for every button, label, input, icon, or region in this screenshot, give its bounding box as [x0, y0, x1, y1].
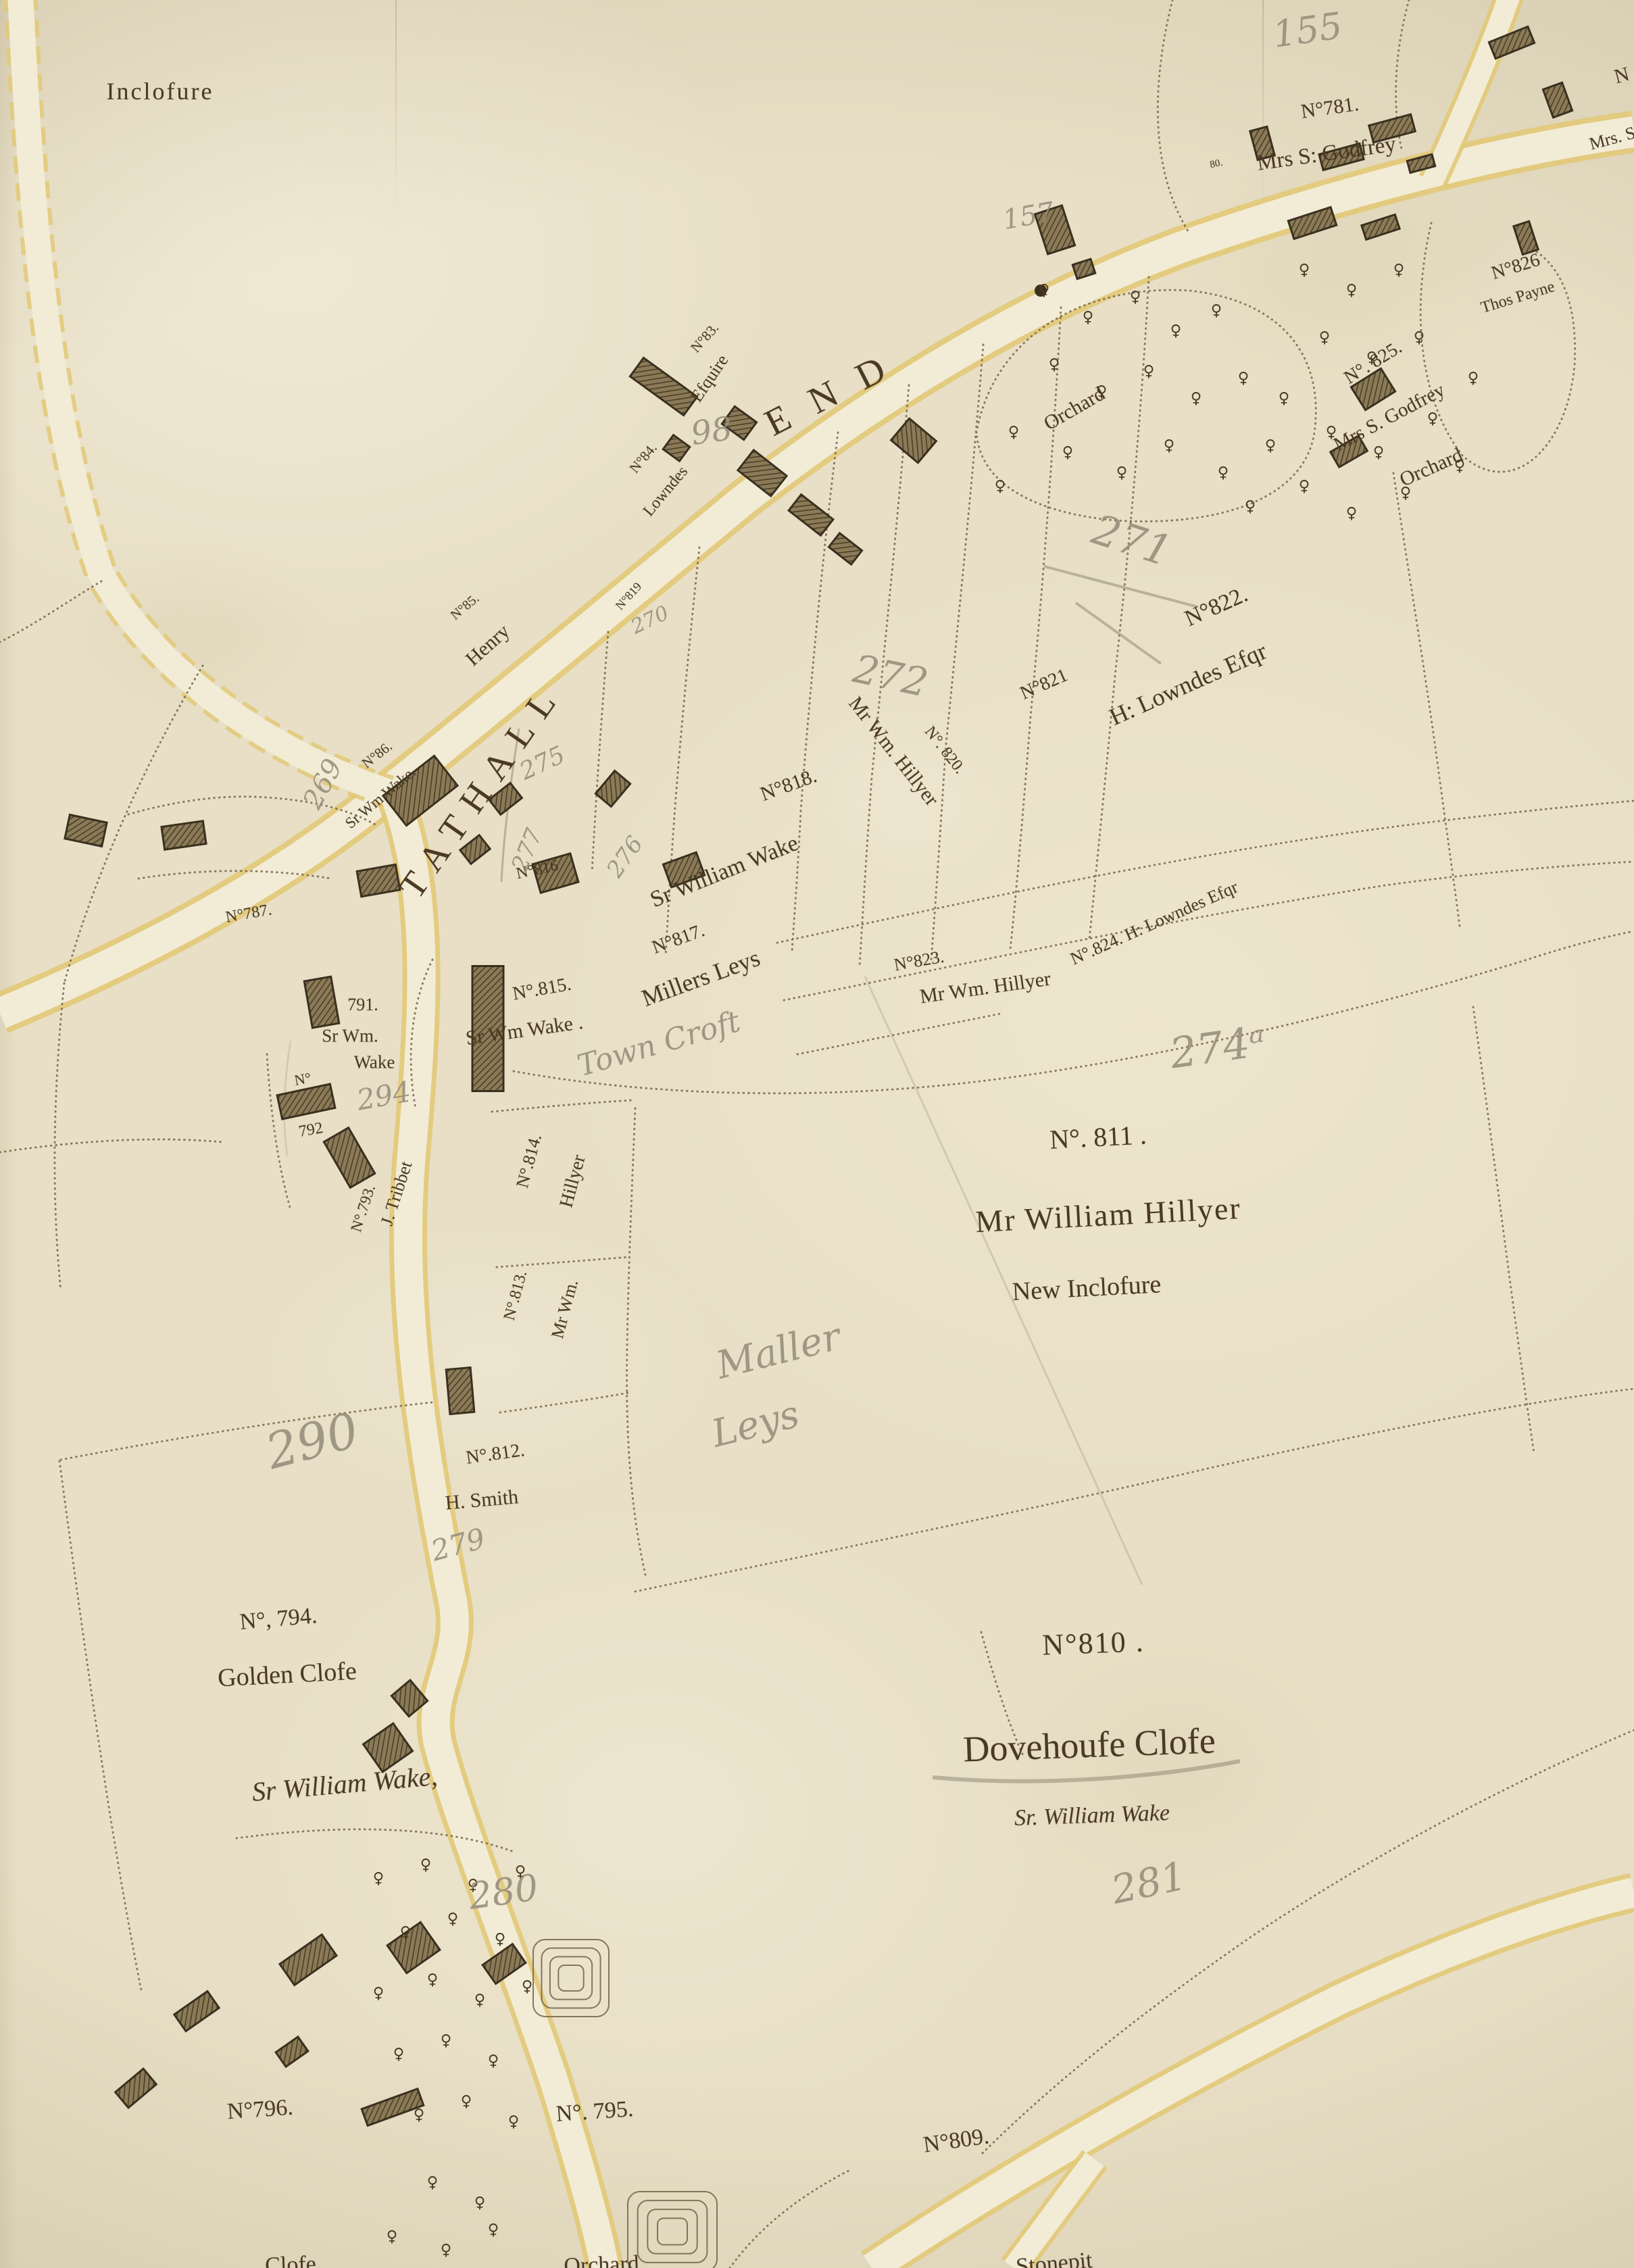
parcel-label-sr-william-wake: Sr William Wake	[647, 832, 801, 912]
parcel-label-n-819: N°819	[614, 580, 644, 612]
parcel-label-n-825: N°. 825.	[1341, 338, 1406, 388]
parcel-label-n-812: N°.812.	[465, 1441, 526, 1468]
parcel-label-new-inclofure: New Inclofure	[1012, 1271, 1162, 1304]
parcel-label-mr-wm: Mr Wm.	[549, 1278, 581, 1341]
parcel-label-h-smith: H. Smith	[445, 1487, 520, 1513]
pencil-annotation-276: 276	[603, 833, 647, 882]
parcel-label-thos-payne: Thos Payne	[1479, 278, 1557, 316]
parcel-label-end: END	[759, 339, 914, 443]
labels-layer: InclofureN°781.Mrs S: Godfrey80.N°826Tho…	[0, 0, 1634, 2268]
parcel-label-n-822: N°822.	[1181, 583, 1251, 631]
parcel-label-sr-wm-wake: Sr Wm Wake .	[464, 1012, 584, 1049]
parcel-label-80: 80.	[1209, 158, 1223, 171]
parcel-label-mr-wm-hillyer: Mr Wm. Hillyer	[918, 969, 1052, 1008]
parcel-label-791: 791.	[347, 996, 378, 1014]
parcel-label-sr-wm: Sr Wm.	[322, 1027, 378, 1045]
parcel-label-n-824-h-lowndes-efqr: N°.824. H: Lowndes Efqr	[1068, 879, 1241, 968]
parcel-label-n-815: N°.815.	[512, 975, 573, 1004]
parcel-label-sr-william-wake: Sr. William Wake	[1014, 1802, 1170, 1830]
parcel-label-lowndes: Lowndes	[641, 464, 691, 520]
parcel-label-n-811: N°. 811 .	[1049, 1121, 1147, 1153]
parcel-label-dovehoufe-clofe: Dovehoufe Clofe	[962, 1723, 1216, 1768]
parcel-label-n-820: N°. 820.	[922, 724, 968, 777]
parcel-label-n-795: N°. 795.	[555, 2098, 635, 2126]
parcel-label-mrs-s-godfrey: Mrs S: Godfrey	[1256, 133, 1397, 175]
pencil-annotation-157: 157	[1001, 199, 1056, 235]
estate-map-canvas: InclofureN°781.Mrs S: Godfrey80.N°826Tho…	[0, 0, 1634, 2268]
parcel-label-clofe: Clofe	[265, 2253, 317, 2268]
pencil-annotation-294: 294	[355, 1077, 413, 1114]
parcel-label-wake: Wake	[354, 1054, 395, 1072]
pencil-annotation-leys: Leys	[708, 1396, 803, 1454]
parcel-label-n-821: N°821	[1018, 666, 1070, 703]
parcel-label-h-lowndes-efqr: H: Lowndes Efqr	[1106, 639, 1270, 730]
parcel-label-n-85: N°85.	[448, 591, 481, 622]
parcel-label-golden-clofe: Golden Clofe	[217, 1658, 357, 1692]
parcel-label-n-817: N°817.	[649, 921, 707, 958]
pencil-annotation-290: 290	[261, 1405, 363, 1476]
pencil-annotation-274: 274ᵃ	[1168, 1020, 1268, 1075]
parcel-label-mr-wm-hillyer: Mr Wm. Hillyer	[845, 693, 942, 810]
pencil-annotation-281: 281	[1108, 1856, 1189, 1910]
parcel-label-henry: Henry	[462, 621, 514, 670]
pencil-annotation-98: 98	[689, 412, 734, 450]
parcel-label-n-826: N°826	[1489, 251, 1542, 283]
pencil-annotation-town-croft: Town Croft	[574, 1007, 743, 1082]
parcel-label-n-809: N°809.	[922, 2125, 990, 2156]
parcel-label-n-83: N°83.	[689, 320, 722, 355]
parcel-label-n-814: N°.814.	[514, 1132, 545, 1189]
pencil-annotation-279: 279	[428, 1524, 488, 1565]
parcel-label-n-794: N°, 794.	[239, 1604, 318, 1634]
parcel-label-hillyer: Hillyer	[557, 1153, 589, 1210]
parcel-label-n-86: N°86.	[360, 739, 395, 770]
pencil-annotation-maller: Maller	[713, 1318, 844, 1385]
parcel-label-n-810: N°810 .	[1042, 1627, 1145, 1660]
parcel-label-n-84: N°84.	[627, 441, 660, 476]
parcel-label-n: N	[1612, 64, 1632, 88]
parcel-label-sr-william-wake: Sr William Wake,	[251, 1762, 439, 1806]
parcel-label-efquire: Efquire	[687, 351, 731, 405]
pencil-annotation-269: 269	[299, 755, 347, 813]
parcel-label-sr-wm-wake: Sr Wm Wake.	[342, 764, 418, 831]
parcel-label-orchard: Orchard	[1397, 445, 1466, 490]
parcel-label-n-818: N°818.	[758, 766, 819, 805]
parcel-label-orchard: Orchard	[1041, 383, 1108, 434]
parcel-label-n-823: N°823.	[893, 948, 945, 975]
pencil-annotation-270: 270	[628, 603, 672, 637]
pencil-annotation-280: 280	[466, 1869, 541, 1915]
parcel-label-mrs-s: Mrs. S	[1587, 124, 1634, 153]
parcel-label-n-781: N°781.	[1299, 94, 1360, 122]
pencil-annotation-155: 155	[1270, 7, 1345, 53]
parcel-label-n-787: N°787.	[224, 902, 273, 926]
parcel-label-inclofure: Inclofure	[107, 79, 214, 103]
pencil-annotation-271: 271	[1087, 508, 1177, 573]
parcel-label-orchard: Orchard	[564, 2252, 640, 2268]
parcel-label-n: N°	[293, 1070, 312, 1088]
parcel-label-mrs-s-godfrey: Mrs S. Godfrey	[1331, 380, 1448, 455]
parcel-label-792: 792	[297, 1120, 324, 1140]
parcel-label-mr-william-hillyer: Mr William Hillyer	[974, 1193, 1241, 1238]
parcel-label-n-813: N°.813.	[501, 1269, 530, 1323]
parcel-label-j-tribbet: J. Tribbet	[378, 1159, 415, 1227]
parcel-label-n-793: N°.793.	[348, 1183, 378, 1233]
parcel-label-stonepit: Stonepit	[1015, 2249, 1093, 2268]
parcel-label-n-796: N°796.	[226, 2096, 294, 2124]
